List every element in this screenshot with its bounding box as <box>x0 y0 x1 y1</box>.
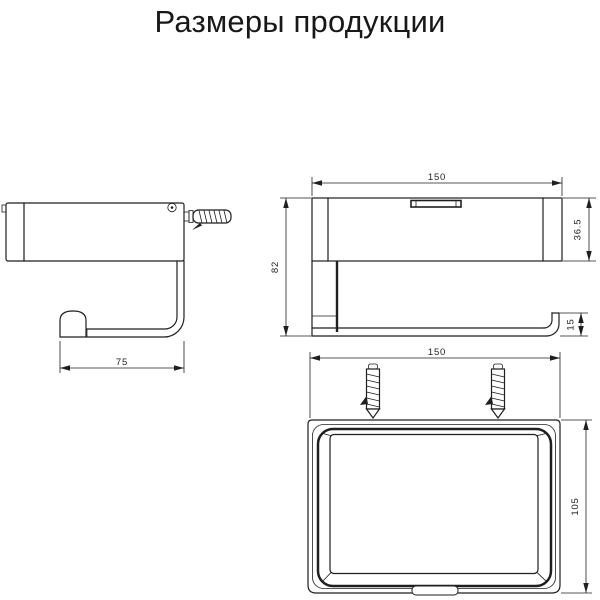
side-arm-outer <box>87 261 184 337</box>
tray-wall-line <box>318 429 551 586</box>
front-view-drawing: 150 <box>270 172 596 336</box>
tray-floor-outline <box>330 435 538 574</box>
wall-anchor-left-icon <box>360 364 380 418</box>
screw-head-icon <box>168 203 176 211</box>
dimension-side-depth: 75 <box>60 341 184 373</box>
top-width-label: 150 <box>428 347 446 358</box>
tray-rim-line <box>313 425 556 589</box>
front-height-label: 82 <box>270 261 281 273</box>
side-shelf-outline <box>6 203 184 261</box>
front-width-label: 150 <box>428 172 446 183</box>
side-view-drawing: 75 <box>2 203 231 373</box>
wall-anchor-side-icon <box>184 210 231 230</box>
dimension-diagram-svg: 75 150 <box>0 0 600 600</box>
dimension-shelf-height: 36.5 <box>563 198 596 261</box>
top-depth-label: 105 <box>570 497 581 515</box>
dimension-front-width: 150 <box>312 172 562 196</box>
side-depth-label: 75 <box>116 357 128 368</box>
dimension-top-depth: 105 <box>561 420 592 593</box>
dimension-top-width: 150 <box>310 347 560 418</box>
shelf-height-label: 36.5 <box>573 219 584 241</box>
tray-front-tab <box>412 586 458 595</box>
dimension-bar-height: 15 <box>560 313 588 336</box>
tray-outer-outline <box>308 420 560 593</box>
front-top-slot <box>411 201 461 208</box>
side-arm-inner <box>87 261 177 329</box>
dimension-front-height: 82 <box>270 198 311 336</box>
dimension-drawing-page: Размеры продукции <box>0 0 600 600</box>
front-bar-hook <box>544 313 559 336</box>
wall-anchor-right-icon <box>485 364 505 418</box>
tray-corner-chamfers <box>322 433 546 581</box>
top-view-drawing: 150 <box>308 347 592 595</box>
side-end-cap <box>60 311 86 337</box>
bar-height-label: 15 <box>566 318 577 330</box>
